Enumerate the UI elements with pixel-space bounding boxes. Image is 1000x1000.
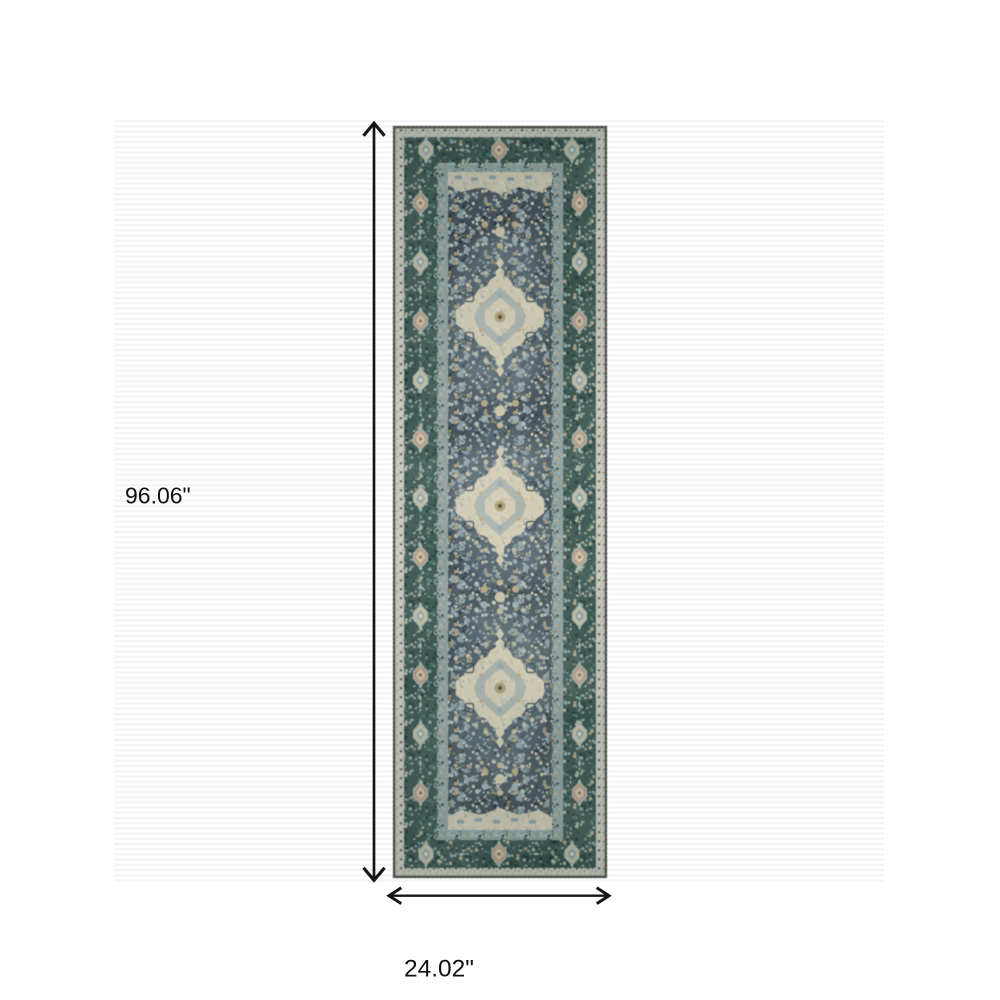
- svg-text:96.06": 96.06": [125, 483, 191, 509]
- svg-text:24.02": 24.02": [404, 956, 474, 983]
